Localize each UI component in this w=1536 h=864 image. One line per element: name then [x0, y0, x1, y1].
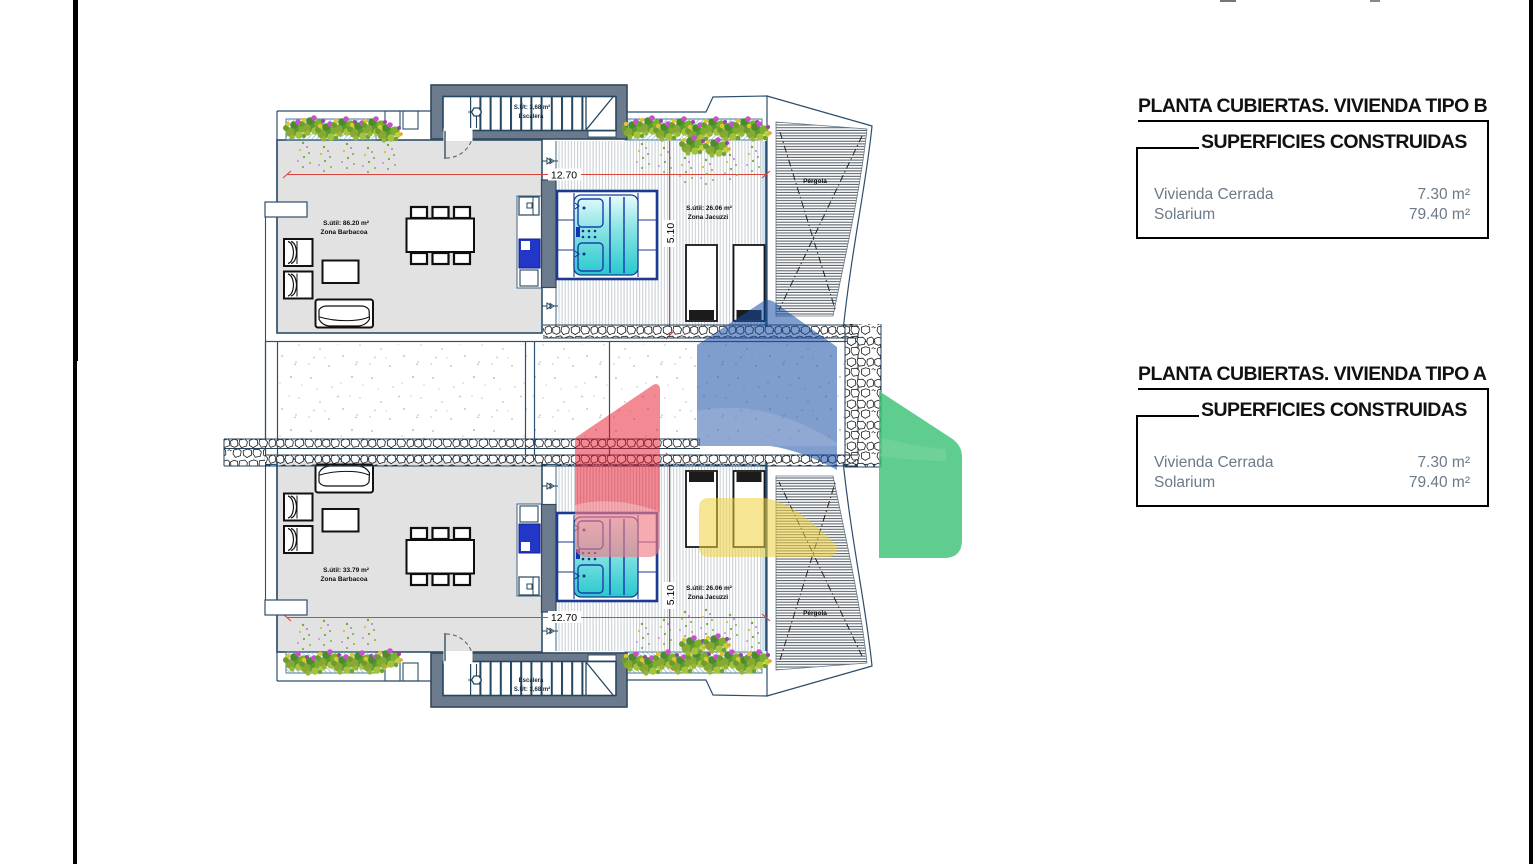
- svg-text:Zona Barbacoa: Zona Barbacoa: [321, 576, 368, 583]
- svg-text:Zona Jacuzzi: Zona Jacuzzi: [688, 214, 729, 221]
- svg-text:12.70: 12.70: [551, 170, 577, 182]
- svg-text:S.Út: 3,68 m²: S.Út: 3,68 m²: [514, 104, 550, 111]
- svg-text:Zona Barbacoa: Zona Barbacoa: [321, 229, 368, 236]
- svg-text:Escalera: Escalera: [519, 114, 544, 120]
- svg-text:S.útil: 26.06 m²: S.útil: 26.06 m²: [686, 205, 733, 212]
- svg-text:Pérgola: Pérgola: [803, 178, 827, 185]
- svg-text:5.10: 5.10: [665, 585, 677, 606]
- svg-text:Zona Jacuzzi: Zona Jacuzzi: [688, 594, 729, 601]
- svg-text:S.útil: 86.20 m²: S.útil: 86.20 m²: [323, 220, 370, 227]
- svg-text:S.útil: 33.79 m²: S.útil: 33.79 m²: [323, 567, 370, 574]
- svg-text:Pérgola: Pérgola: [803, 610, 827, 617]
- svg-text:Escalera: Escalera: [519, 678, 544, 684]
- svg-text:S.útil: 26.06 m²: S.útil: 26.06 m²: [686, 585, 733, 592]
- svg-text:5.10: 5.10: [665, 223, 677, 244]
- svg-text:12.70: 12.70: [551, 612, 577, 624]
- svg-text:S.Út: 3,68 m²: S.Út: 3,68 m²: [514, 686, 550, 693]
